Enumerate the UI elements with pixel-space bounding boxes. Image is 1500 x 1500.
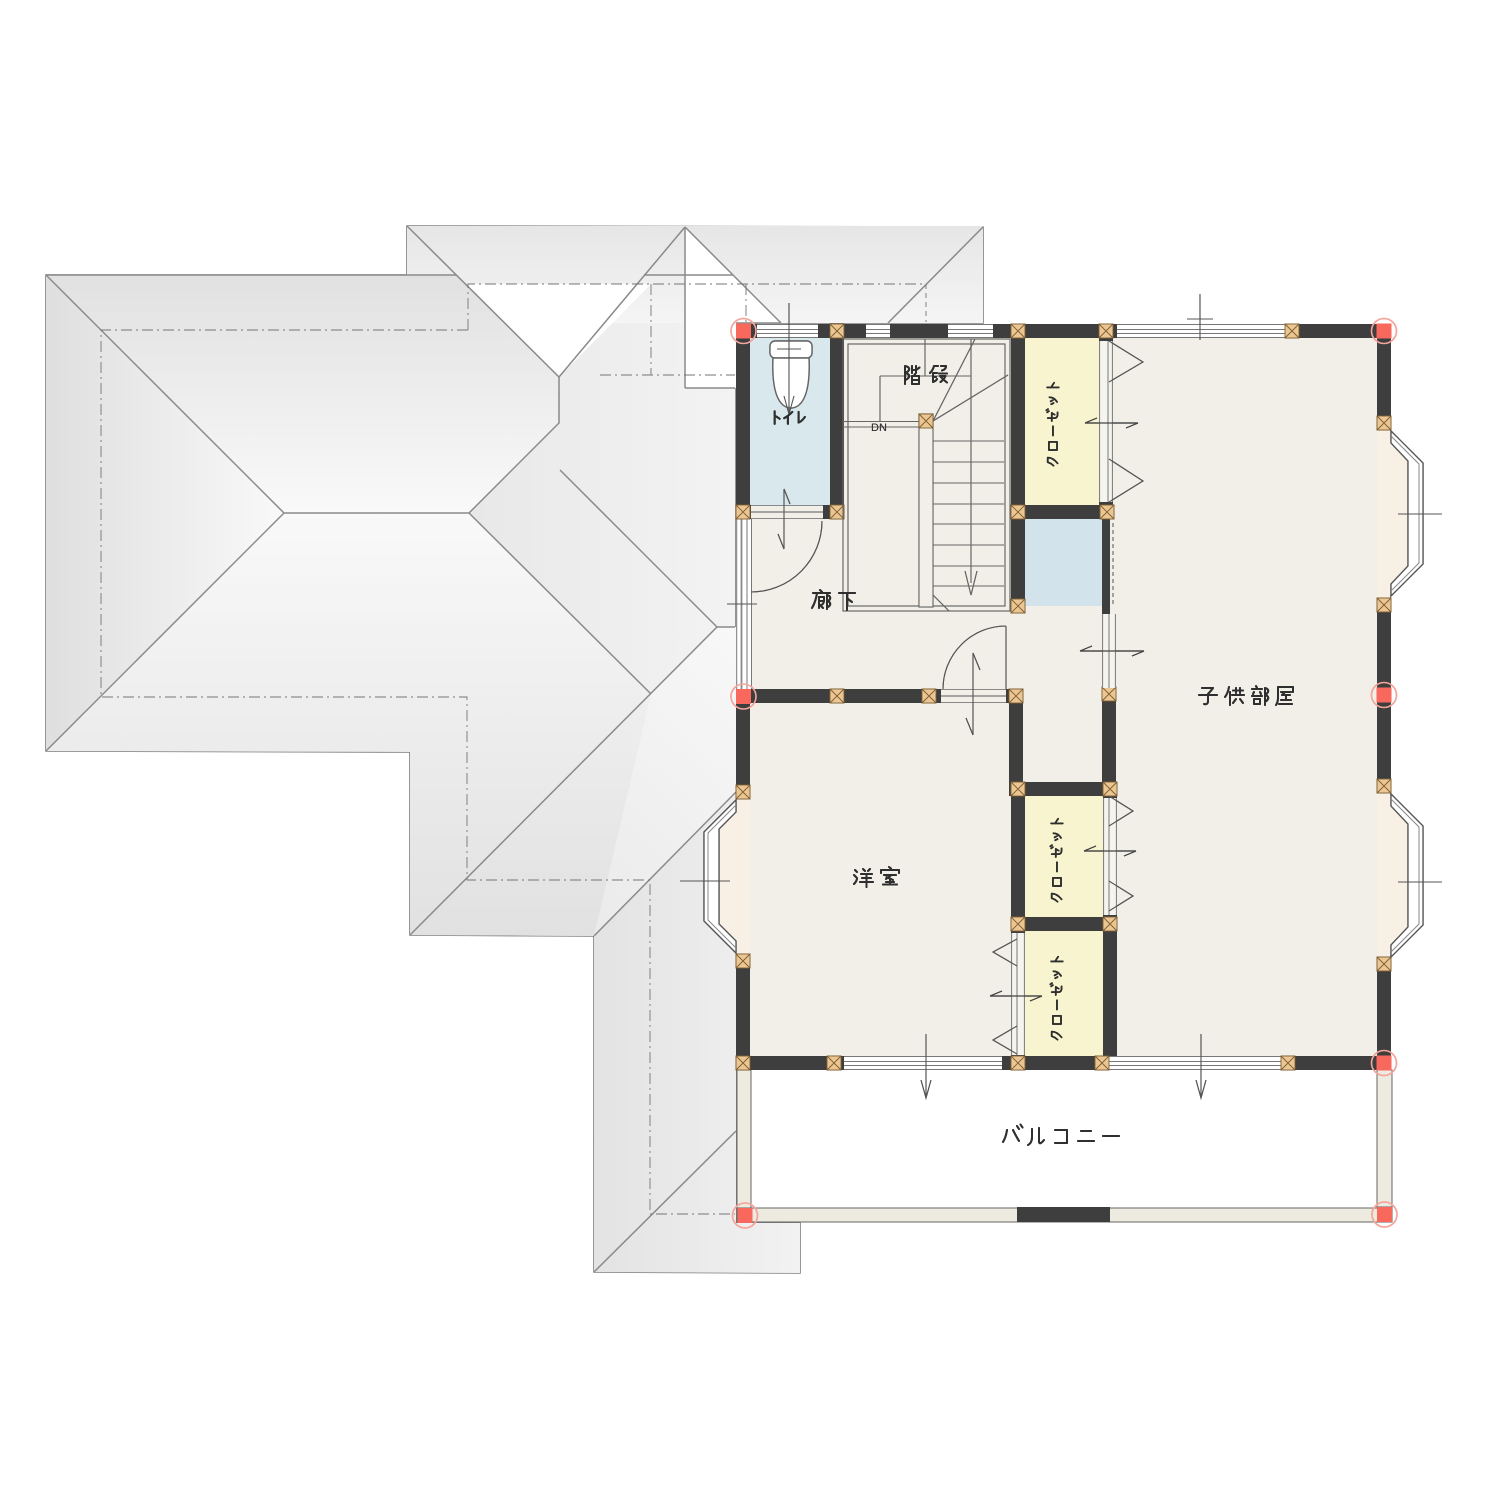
svg-text:DN: DN xyxy=(871,422,887,434)
